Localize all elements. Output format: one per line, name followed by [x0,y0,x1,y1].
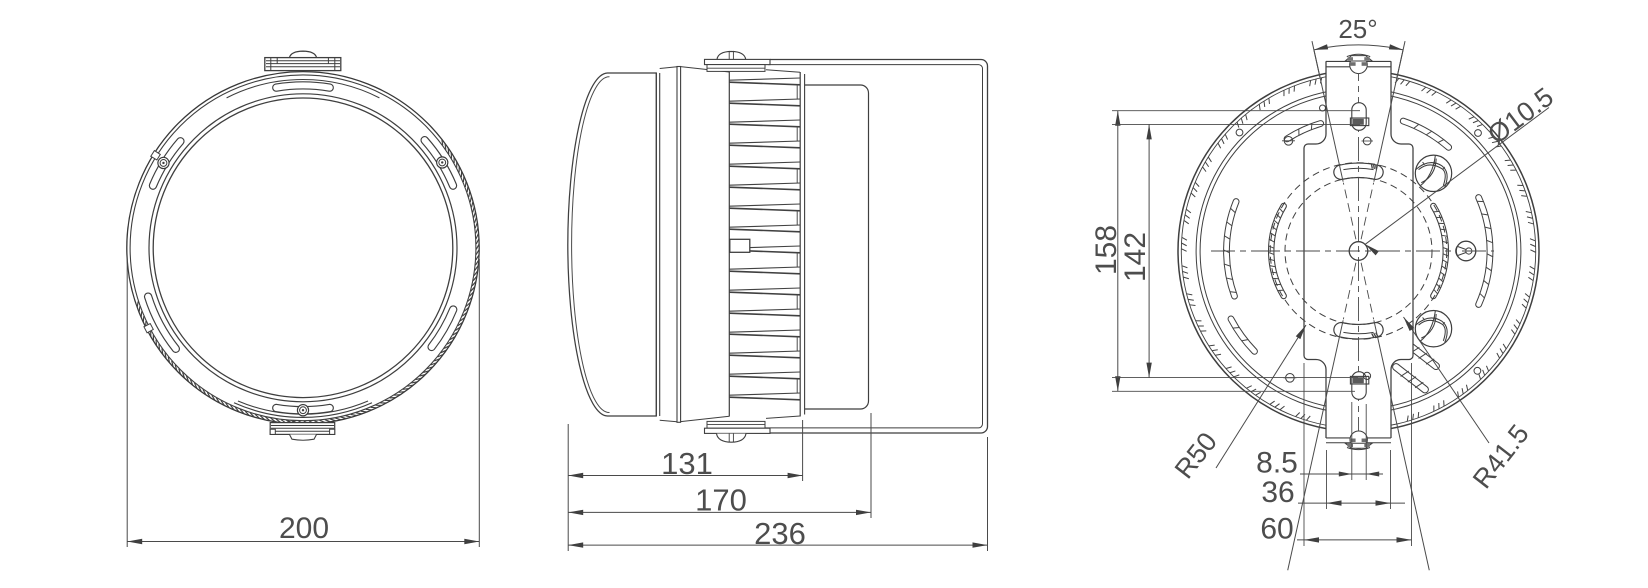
svg-text:36: 36 [1261,476,1294,509]
svg-text:25°: 25° [1338,14,1377,44]
svg-text:236: 236 [754,516,806,551]
svg-text:60: 60 [1260,512,1293,545]
svg-text:8.5: 8.5 [1256,447,1298,480]
svg-text:170: 170 [695,483,747,518]
svg-text:142: 142 [1119,232,1152,282]
svg-text:200: 200 [279,512,329,545]
svg-text:131: 131 [661,446,713,481]
